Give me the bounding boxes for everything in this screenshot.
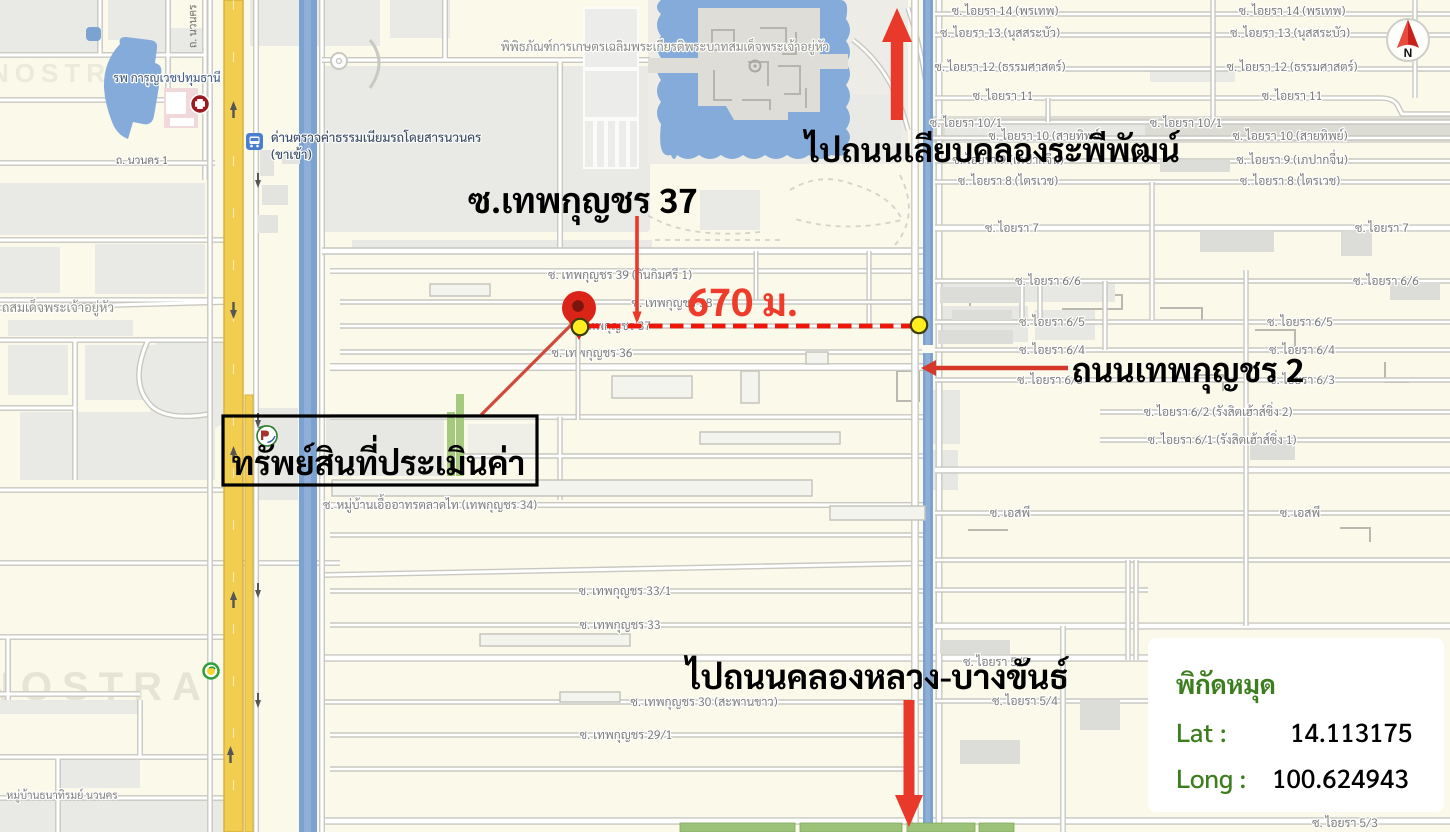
svg-text:N: N xyxy=(1404,46,1413,60)
